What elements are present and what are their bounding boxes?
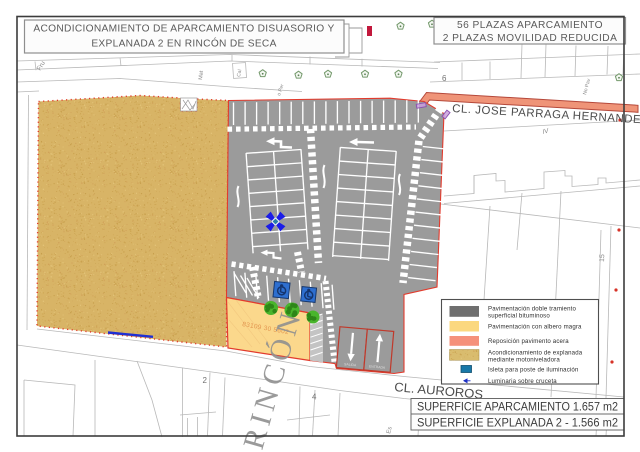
svg-text:Pavimentación con albero magra: Pavimentación con albero magra [488, 324, 582, 331]
svg-text:6: 6 [442, 74, 447, 83]
svg-text:15: 15 [599, 254, 606, 262]
svg-text:Mat: Mat [198, 70, 205, 80]
svg-text:4: 4 [312, 393, 317, 402]
svg-text:mediante motoniveladora: mediante motoniveladora [488, 357, 560, 364]
svg-text:SUPERFICIE EXPLANADA 2 - 1.566: SUPERFICIE EXPLANADA 2 - 1.566 m2 [417, 416, 618, 430]
svg-text:56 PLAZAS APARCAMIENTO: 56 PLAZAS APARCAMIENTO [457, 20, 603, 31]
svg-text:Isleta para poste de iluminaci: Isleta para poste de iluminación [488, 367, 579, 374]
svg-text:Luminaria sobre cruceta: Luminaria sobre cruceta [488, 378, 557, 385]
svg-text:Acondicionamiento de explanada: Acondicionamiento de explanada [488, 350, 583, 357]
svg-text:2 PLAZAS MOVILIDAD REDUCIDA: 2 PLAZAS MOVILIDAD REDUCIDA [443, 33, 618, 44]
svg-text:SUPERFICIE APARCAMIENTO 1.657: SUPERFICIE APARCAMIENTO 1.657 m2 [417, 400, 618, 414]
svg-text:Reposición pavimento acera: Reposición pavimento acera [488, 338, 569, 345]
svg-text:superficial bituminoso: superficial bituminoso [488, 313, 550, 320]
svg-text:Cal: Cal [236, 69, 243, 77]
svg-text:Pavimentación doble tramiento: Pavimentación doble tramiento [488, 306, 576, 313]
svg-text:2: 2 [203, 376, 208, 385]
svg-text:EXPLANADA 2 EN RINCÓN DE SECA: EXPLANADA 2 EN RINCÓN DE SECA [91, 37, 276, 50]
svg-text:ACONDICIONAMIENTO DE APARCAMIE: ACONDICIONAMIENTO DE APARCAMIENTO DISUAS… [33, 24, 334, 35]
